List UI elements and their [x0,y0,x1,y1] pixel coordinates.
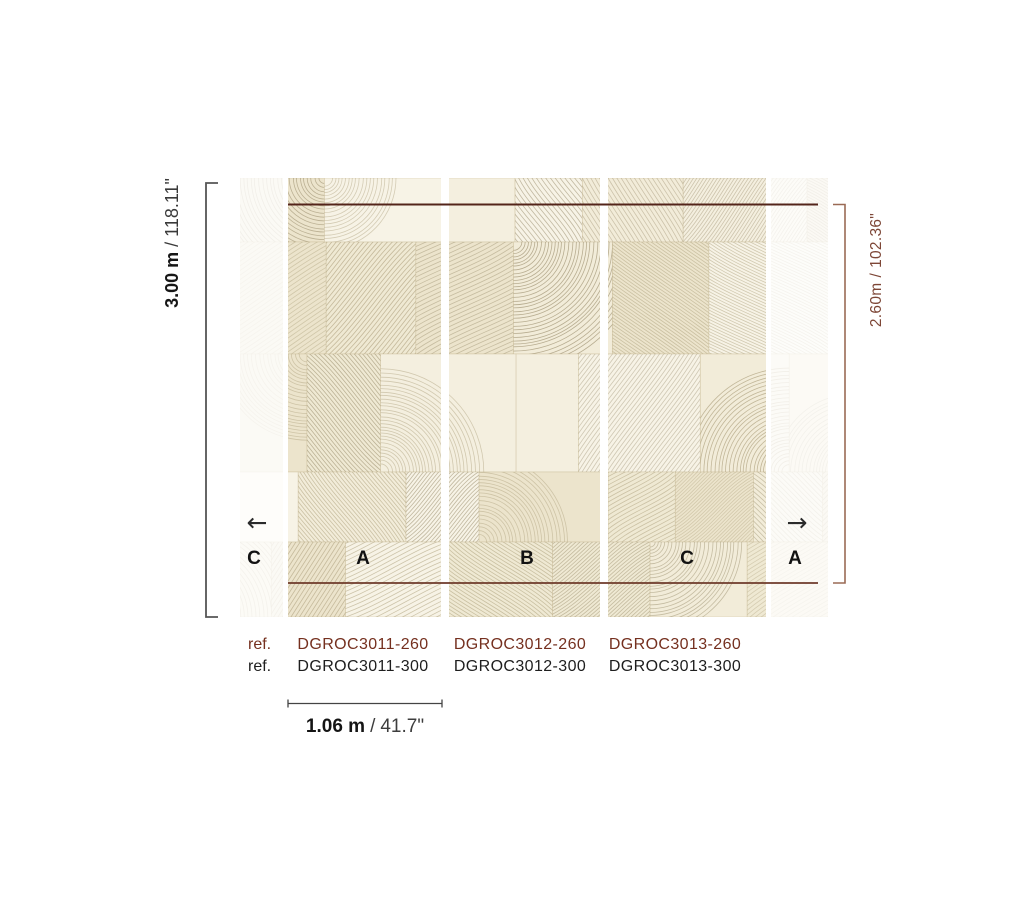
ref-code-300-panel-c: DGROC3013-300 [600,658,750,676]
arrow-left-icon: ← [235,509,279,537]
ref-code-300-panel-a: DGROC3011-300 [288,658,438,676]
ref-label-260: ref. [248,636,292,654]
panel-label-b: B [512,548,542,570]
panel-width-dimension-label: 1.06 m / 41.7" [265,716,465,738]
ref-code-260-panel-a: DGROC3011-260 [288,636,438,654]
panel-width-separator: / [370,716,375,738]
ref-label-300: ref. [248,658,292,676]
height-trimmed-dimension-label: 2.60m / 102.36" [866,190,888,350]
panel-width-metric: 1.06 m [306,716,365,738]
height-total-dimension-label: 3.00 m / 118.11" [160,143,184,343]
ref-code-260-panel-c: DGROC3013-260 [600,636,750,654]
ref-code-300-panel-b: DGROC3012-300 [445,658,595,676]
panel-width-line [288,700,442,708]
height-total-bracket [206,183,218,617]
height-total-separator: / [162,242,183,247]
wallpaper-panel-dimension-diagram: 3.00 m / 118.11" 2.60m / 102.36" ← → C A… [0,0,1024,907]
panel-label-a: A [348,548,378,570]
panel-width-imperial: 41.7" [380,716,424,738]
panel-label-c: C [672,548,702,570]
panel-label-repeat-a: A [780,548,810,570]
height-trim-metric: 2.60m [868,283,886,328]
height-total-imperial: 118.11" [162,178,183,237]
height-trim-bracket [833,205,845,584]
height-total-metric: 3.00 m [162,252,183,308]
height-trim-imperial: 102.36" [868,213,886,268]
height-trim-separator: / [868,273,886,278]
panel-label-repeat-c: C [239,548,269,570]
arrow-right-icon: → [775,509,819,537]
ref-code-260-panel-b: DGROC3012-260 [445,636,595,654]
